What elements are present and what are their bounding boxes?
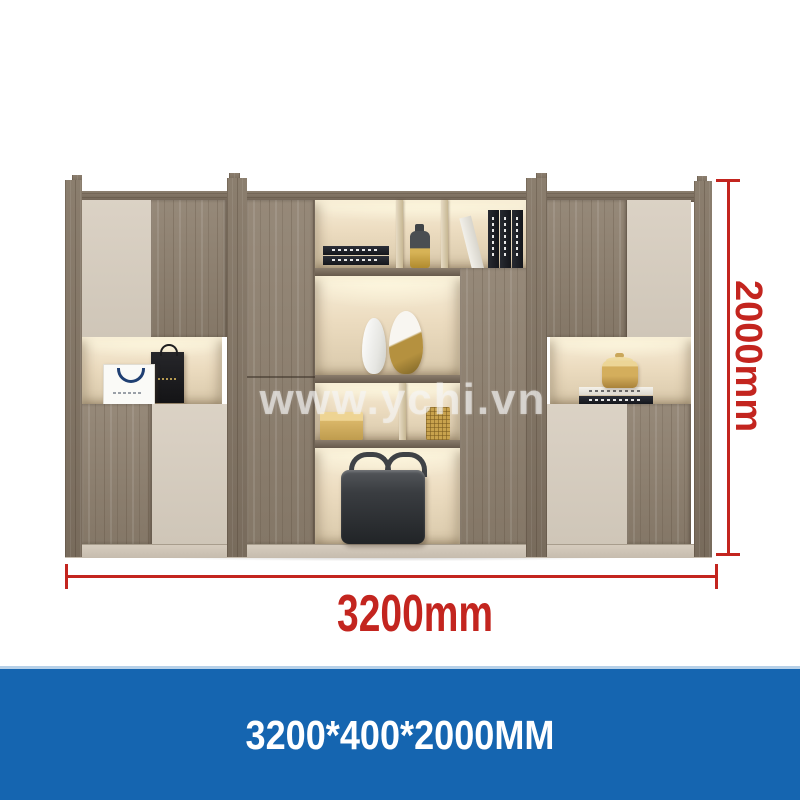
book-spine [579, 396, 653, 404]
shelf-divider [441, 200, 448, 268]
left-unit-upper-beige-panel [82, 200, 151, 337]
book-spine [488, 210, 499, 268]
black-bag-handle [160, 344, 178, 356]
white-bag-text [113, 392, 143, 394]
width-dimension-tick-left [65, 564, 68, 589]
size-banner: 3200*400*2000MM [0, 666, 800, 800]
size-banner-text: 3200*400*2000MM [48, 715, 752, 756]
right-stile [694, 181, 712, 557]
width-dimension-tick-right [715, 564, 718, 589]
height-dimension-label: 2000mm [731, 280, 765, 430]
left-unit-upper-wood-door [151, 200, 227, 337]
book-stack [579, 387, 653, 404]
height-dimension-tick-top [716, 179, 740, 182]
left-unit-lower-beige-panel [152, 404, 227, 544]
leather-briefcase [341, 470, 425, 544]
right-unit-upper-wood-door [547, 200, 627, 337]
right-unit-lower-wood-door [627, 404, 691, 544]
book-spine [579, 387, 653, 395]
center-right-stile [526, 178, 547, 557]
height-dimension-tick-bottom [716, 553, 740, 556]
product-image: www.ychi.vn 2000mm 3200mm 3200*400*2000M… [0, 0, 800, 800]
right-unit-lower-beige-panel [547, 404, 627, 544]
book-spine [500, 210, 511, 268]
book-spine [323, 256, 389, 265]
vertical-books [488, 210, 526, 268]
center-vase-compartment [315, 276, 460, 375]
right-unit-upper-beige-panel [627, 200, 691, 337]
book-spine [323, 246, 389, 255]
width-dimension-line [66, 575, 718, 578]
center-left-stile [227, 178, 247, 557]
width-dimension-label: 3200mm [337, 587, 487, 642]
left-unit-lower-wood-door [82, 404, 152, 544]
watermark: www.ychi.vn [250, 378, 556, 422]
stacked-books [323, 246, 389, 267]
white-vase [362, 318, 386, 374]
book-spine [512, 210, 523, 268]
black-bag-logo [158, 378, 176, 380]
gold-jar [602, 361, 638, 388]
shelf-board [315, 440, 460, 448]
cabinet-plinth [65, 544, 712, 558]
gold-bottle [410, 231, 430, 268]
center-unit-left-wood-door [247, 200, 315, 544]
left-stile [65, 180, 82, 557]
gold-white-vase [389, 311, 423, 374]
shelf-divider [396, 200, 403, 268]
